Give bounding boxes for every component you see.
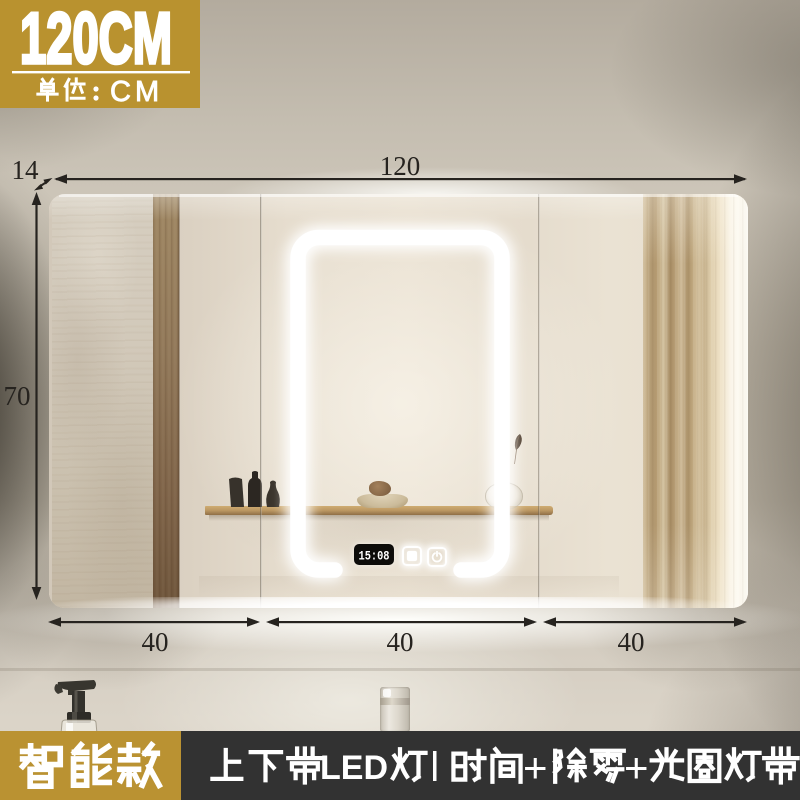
svg-text:120CM: 120CM <box>20 0 172 79</box>
svg-text:14: 14 <box>12 155 40 185</box>
svg-text:+: + <box>523 744 548 791</box>
svg-text:120: 120 <box>380 151 421 181</box>
svg-text:40: 40 <box>142 627 169 657</box>
svg-text:LED: LED <box>320 749 388 787</box>
svg-text:70: 70 <box>4 381 31 411</box>
svg-text:40: 40 <box>387 627 414 657</box>
svg-text:CM: CM <box>110 76 163 108</box>
svg-text:+: + <box>624 744 649 791</box>
svg-text:40: 40 <box>618 627 645 657</box>
